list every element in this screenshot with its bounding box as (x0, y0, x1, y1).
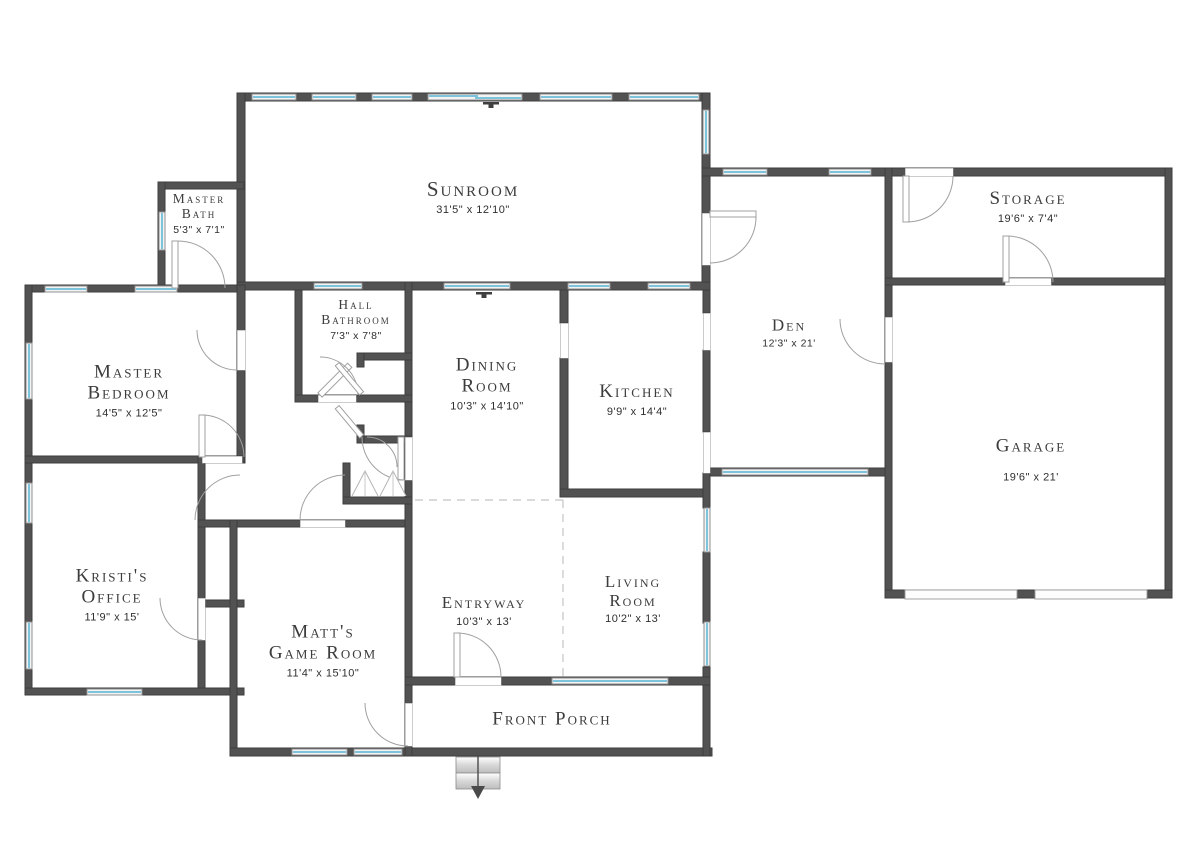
room-label-kristis-office: Kristi's Office 11'9" x 15' (76, 567, 149, 624)
den-garage-door-arc (840, 319, 885, 364)
room-label-hall-bathroom: Hall Bathroom 7'3" x 7'8" (321, 298, 391, 342)
master-bedroom-door-arc (197, 330, 237, 370)
sunroom-den-door (710, 211, 756, 217)
porch-gameroom-door-arc (365, 703, 408, 746)
storage-garage-door (1003, 236, 1009, 282)
storage-exterior-door (903, 176, 909, 222)
dining-hall-door (398, 437, 404, 480)
room-label-dining-room: Dining Room 10'3" x 14'10" (450, 356, 523, 413)
bedroom-hall-door (199, 415, 205, 457)
room-label-den: Den 12'3" x 21' (762, 317, 816, 350)
steps-down-arrow-icon (471, 786, 485, 799)
room-label-master-bath: Master Bath 5'3" x 7'1" (173, 192, 226, 236)
room-label-entryway: Entryway 10'3" x 13' (442, 594, 527, 628)
dashed-boundaries (415, 500, 563, 677)
room-label-front-porch: Front Porch (492, 710, 611, 731)
room-label-living-room: Living Room 10'2" x 13' (605, 573, 661, 625)
room-label-storage: Storage 19'6" x 7'4" (989, 189, 1066, 225)
room-label-master-bedroom: Master Bedroom 14'5" x 12'5" (87, 363, 170, 420)
office-door-arc (160, 598, 202, 640)
front-door (454, 633, 460, 677)
room-label-garage: Garage 19'6" x 21' (996, 437, 1067, 484)
hall-closet-door (335, 406, 363, 438)
room-label-matts-game-room: Matt's Game Room 11'4" x 15'10" (269, 623, 377, 680)
garage-door-right (1035, 590, 1147, 599)
master-bath-door (172, 241, 178, 288)
room-label-kitchen: Kitchen 9'9" x 14'4" (599, 382, 674, 418)
floor-plan-canvas: Sunroom 31'5" x 12'10" Master Bath 5'3" … (0, 0, 1200, 850)
game-room-door-arc (300, 475, 345, 520)
porch-steps (456, 756, 500, 799)
garage-door-left (905, 590, 1017, 599)
room-label-sunroom: Sunroom 31'5" x 12'10" (427, 178, 519, 216)
